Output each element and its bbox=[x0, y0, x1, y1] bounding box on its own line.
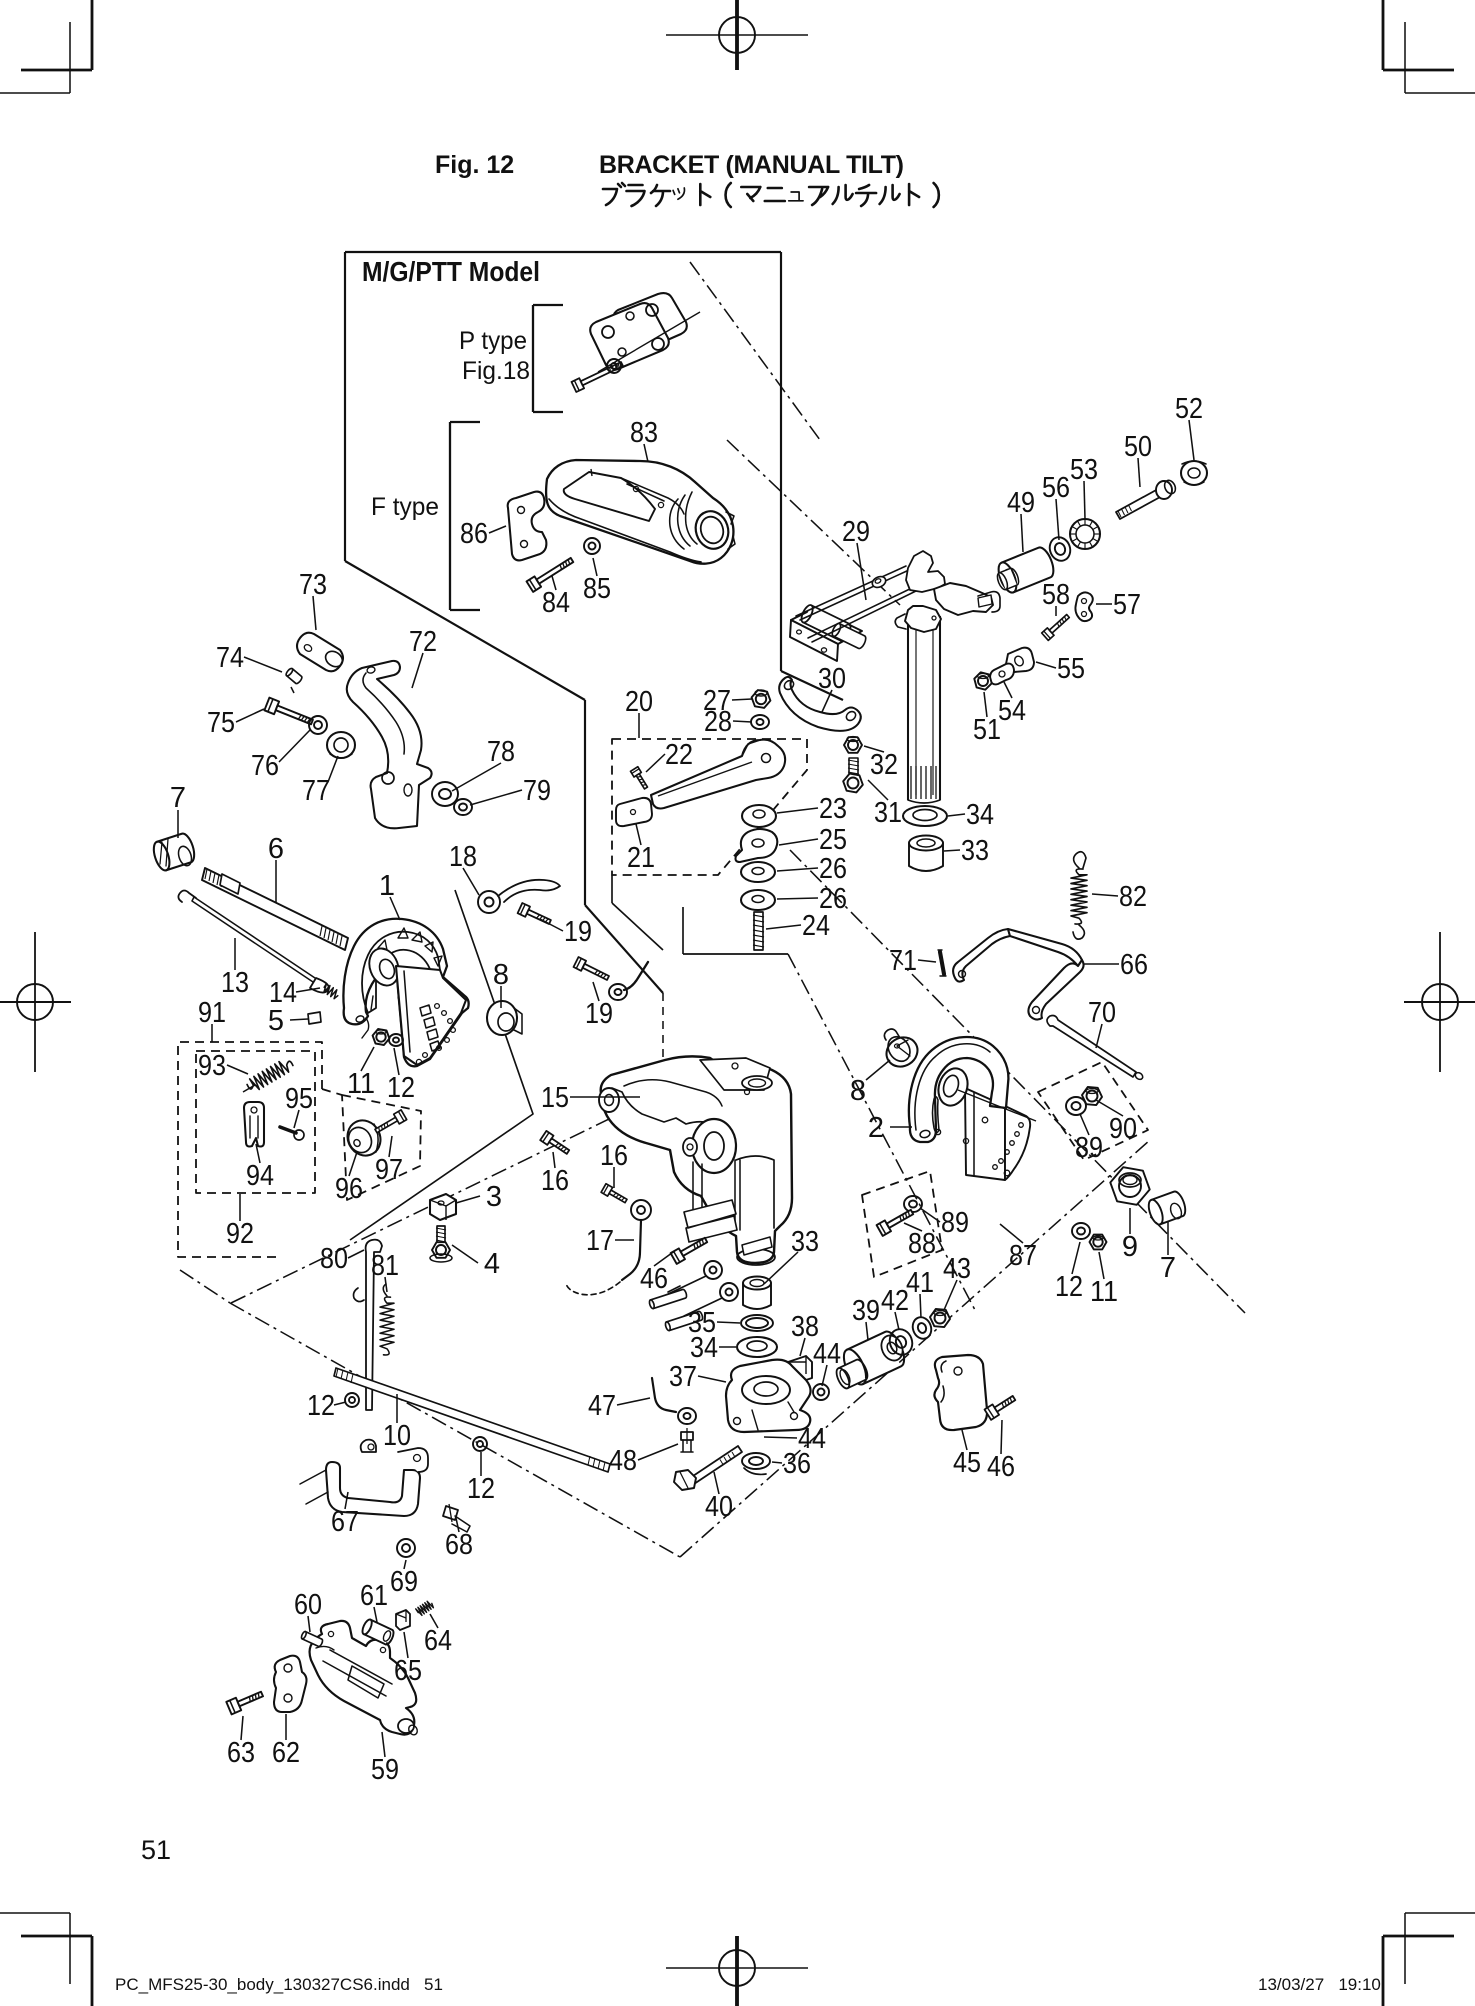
svg-text:22: 22 bbox=[665, 739, 693, 771]
svg-text:77: 77 bbox=[302, 775, 330, 807]
svg-text:58: 58 bbox=[1042, 579, 1070, 611]
svg-text:Fig.18: Fig.18 bbox=[462, 357, 530, 385]
svg-text:78: 78 bbox=[487, 736, 515, 768]
svg-text:45: 45 bbox=[953, 1447, 981, 1479]
svg-text:86: 86 bbox=[460, 518, 488, 550]
svg-text:3: 3 bbox=[486, 1181, 502, 1213]
svg-text:64: 64 bbox=[424, 1625, 452, 1657]
svg-text:Fig. 12: Fig. 12 bbox=[435, 151, 514, 179]
svg-text:32: 32 bbox=[870, 749, 898, 781]
svg-text:96: 96 bbox=[335, 1173, 363, 1205]
svg-text:60: 60 bbox=[294, 1589, 322, 1621]
svg-text:29: 29 bbox=[842, 516, 870, 548]
svg-text:47: 47 bbox=[588, 1390, 616, 1422]
svg-text:52: 52 bbox=[1175, 393, 1203, 425]
svg-text:30: 30 bbox=[818, 663, 846, 695]
svg-text:PC_MFS25-30_body_130327CS6.ind: PC_MFS25-30_body_130327CS6.indd 51 bbox=[115, 1975, 443, 1994]
svg-text:44: 44 bbox=[813, 1338, 841, 1370]
svg-text:97: 97 bbox=[375, 1154, 403, 1186]
svg-text:M/G/PTT Model: M/G/PTT Model bbox=[362, 256, 540, 287]
svg-text:1: 1 bbox=[379, 870, 395, 902]
svg-text:12: 12 bbox=[467, 1473, 495, 1505]
svg-text:28: 28 bbox=[704, 706, 732, 738]
svg-text:34: 34 bbox=[966, 799, 994, 831]
svg-text:41: 41 bbox=[906, 1267, 934, 1299]
svg-text:16: 16 bbox=[600, 1140, 628, 1172]
svg-text:73: 73 bbox=[299, 569, 327, 601]
svg-text:80: 80 bbox=[320, 1243, 348, 1275]
svg-text:9: 9 bbox=[1122, 1231, 1138, 1263]
svg-text:35: 35 bbox=[688, 1307, 716, 1339]
svg-text:6: 6 bbox=[268, 833, 284, 865]
svg-text:68: 68 bbox=[445, 1529, 473, 1561]
svg-text:7: 7 bbox=[1160, 1252, 1176, 1284]
svg-text:44: 44 bbox=[798, 1423, 826, 1455]
svg-text:49: 49 bbox=[1007, 487, 1035, 519]
svg-text:81: 81 bbox=[371, 1250, 399, 1282]
svg-text:91: 91 bbox=[198, 997, 226, 1029]
svg-text:13: 13 bbox=[221, 967, 249, 999]
svg-text:18: 18 bbox=[449, 841, 477, 873]
svg-text:16: 16 bbox=[541, 1165, 569, 1197]
svg-text:48: 48 bbox=[609, 1445, 637, 1477]
svg-text:66: 66 bbox=[1120, 949, 1148, 981]
svg-text:43: 43 bbox=[943, 1253, 971, 1285]
svg-text:13/03/27 19:10: 13/03/27 19:10 bbox=[1258, 1975, 1381, 1994]
svg-text:51: 51 bbox=[973, 714, 1001, 746]
svg-text:21: 21 bbox=[627, 842, 655, 874]
svg-text:37: 37 bbox=[669, 1361, 697, 1393]
svg-text:23: 23 bbox=[819, 793, 847, 825]
svg-text:2: 2 bbox=[868, 1112, 884, 1144]
svg-text:74: 74 bbox=[216, 642, 244, 674]
svg-text:46: 46 bbox=[640, 1263, 668, 1295]
svg-text:57: 57 bbox=[1113, 589, 1141, 621]
svg-text:54: 54 bbox=[998, 695, 1026, 727]
svg-text:25: 25 bbox=[819, 824, 847, 856]
svg-text:72: 72 bbox=[409, 626, 437, 658]
svg-text:89: 89 bbox=[1075, 1132, 1103, 1164]
svg-text:BRACKET (MANUAL TILT): BRACKET (MANUAL TILT) bbox=[599, 151, 904, 179]
svg-text:90: 90 bbox=[1109, 1113, 1137, 1145]
svg-text:76: 76 bbox=[251, 750, 279, 782]
svg-text:71: 71 bbox=[889, 945, 917, 977]
svg-text:70: 70 bbox=[1088, 997, 1116, 1029]
svg-text:59: 59 bbox=[371, 1754, 399, 1786]
svg-text:92: 92 bbox=[226, 1218, 254, 1250]
svg-text:11: 11 bbox=[347, 1068, 375, 1100]
svg-text:84: 84 bbox=[542, 587, 570, 619]
svg-text:11: 11 bbox=[1090, 1276, 1118, 1308]
svg-text:39: 39 bbox=[852, 1295, 880, 1327]
svg-text:40: 40 bbox=[705, 1491, 733, 1523]
svg-text:67: 67 bbox=[331, 1506, 359, 1538]
svg-text:79: 79 bbox=[523, 775, 551, 807]
svg-text:51: 51 bbox=[141, 1835, 171, 1865]
svg-text:14: 14 bbox=[269, 977, 297, 1009]
svg-text:89: 89 bbox=[941, 1207, 969, 1239]
svg-text:53: 53 bbox=[1070, 454, 1098, 486]
svg-text:17: 17 bbox=[586, 1225, 614, 1257]
svg-text:15: 15 bbox=[541, 1082, 569, 1114]
svg-text:63: 63 bbox=[227, 1737, 255, 1769]
svg-text:82: 82 bbox=[1119, 881, 1147, 913]
svg-text:7: 7 bbox=[170, 782, 186, 814]
svg-text:12: 12 bbox=[387, 1072, 415, 1104]
svg-text:50: 50 bbox=[1124, 431, 1152, 463]
svg-text:65: 65 bbox=[394, 1655, 422, 1687]
svg-text:95: 95 bbox=[285, 1083, 313, 1115]
svg-text:19: 19 bbox=[564, 916, 592, 948]
svg-text:33: 33 bbox=[961, 835, 989, 867]
svg-text:69: 69 bbox=[390, 1566, 418, 1598]
svg-text:F type: F type bbox=[371, 493, 439, 521]
svg-text:75: 75 bbox=[207, 707, 235, 739]
svg-text:56: 56 bbox=[1042, 472, 1070, 504]
svg-text:26: 26 bbox=[819, 883, 847, 915]
svg-text:26: 26 bbox=[819, 853, 847, 885]
svg-text:31: 31 bbox=[874, 797, 902, 829]
svg-text:33: 33 bbox=[791, 1226, 819, 1258]
svg-text:10: 10 bbox=[383, 1420, 411, 1452]
svg-text:20: 20 bbox=[625, 686, 653, 718]
svg-text:42: 42 bbox=[881, 1285, 909, 1317]
svg-text:4: 4 bbox=[484, 1248, 500, 1280]
svg-text:12: 12 bbox=[1055, 1271, 1083, 1303]
svg-text:19: 19 bbox=[585, 998, 613, 1030]
svg-text:83: 83 bbox=[630, 417, 658, 449]
svg-text:8: 8 bbox=[850, 1075, 866, 1107]
svg-text:87: 87 bbox=[1009, 1240, 1037, 1272]
svg-text:46: 46 bbox=[987, 1451, 1015, 1483]
svg-text:55: 55 bbox=[1057, 653, 1085, 685]
svg-text:94: 94 bbox=[246, 1160, 274, 1192]
svg-text:62: 62 bbox=[272, 1737, 300, 1769]
svg-text:12: 12 bbox=[307, 1390, 335, 1422]
svg-text:61: 61 bbox=[360, 1580, 388, 1612]
svg-text:5: 5 bbox=[268, 1005, 284, 1037]
svg-text:93: 93 bbox=[198, 1050, 226, 1082]
svg-text:88: 88 bbox=[908, 1228, 936, 1260]
svg-text:85: 85 bbox=[583, 573, 611, 605]
svg-text:8: 8 bbox=[493, 959, 509, 991]
svg-text:P type: P type bbox=[459, 327, 527, 355]
